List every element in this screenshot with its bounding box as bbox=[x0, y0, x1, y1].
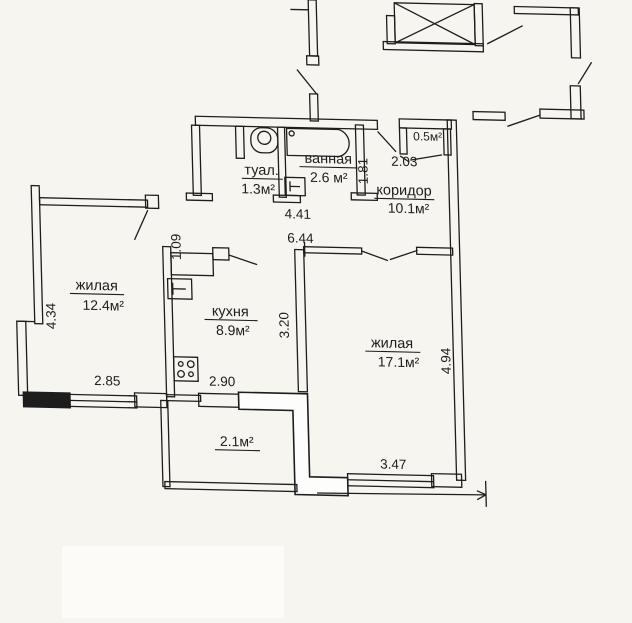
scan-shadow bbox=[62, 546, 284, 618]
room-area-toilet: 1.3м² bbox=[241, 180, 275, 197]
dim-living-right-width: 3.47 bbox=[380, 456, 407, 472]
room-label-living-right: жилая bbox=[371, 335, 414, 352]
room-label-kitchen: кухня bbox=[212, 304, 249, 321]
dim-living-left-width: 2.85 bbox=[94, 373, 121, 389]
room-area-storage: 0.5м² bbox=[413, 129, 442, 144]
room-label-corridor: коридор bbox=[376, 182, 432, 199]
room-area-living-left: 12.4м² bbox=[82, 297, 124, 314]
dim-bath-depth: 1.81 bbox=[355, 158, 371, 185]
room-label-bathroom: ванная bbox=[304, 151, 352, 168]
room-area-kitchen: 8.9м² bbox=[216, 322, 250, 339]
room-area-living-right: 17.1м² bbox=[378, 353, 420, 370]
room-area-bathroom: 2.6 м² bbox=[310, 169, 348, 186]
scanned-floor-plan: туал. 1.3м² ванная 2.6 м² коридор 10.1м²… bbox=[0, 0, 632, 623]
room-label-living-left: жилая bbox=[75, 278, 118, 295]
dim-hall-width: 4.41 bbox=[284, 206, 311, 222]
dim-living-left-depth: 4.34 bbox=[43, 302, 59, 329]
room-label-toilet: туал. bbox=[244, 162, 279, 179]
room-area-corridor: 10.1м² bbox=[388, 200, 430, 217]
room-area-balcony: 2.1м² bbox=[220, 433, 254, 450]
floor-plan-svg: туал. 1.3м² ванная 2.6 м² коридор 10.1м²… bbox=[0, 0, 632, 623]
dim-living-right-depth: 4.94 bbox=[438, 347, 454, 374]
dim-doorway: 1.09 bbox=[168, 234, 184, 261]
dim-entry-width: 2.03 bbox=[391, 154, 418, 170]
dim-kitchen-width: 2.90 bbox=[209, 374, 236, 390]
dim-kitchen-depth: 3.20 bbox=[276, 312, 292, 339]
dim-total-width: 6.44 bbox=[287, 230, 314, 246]
